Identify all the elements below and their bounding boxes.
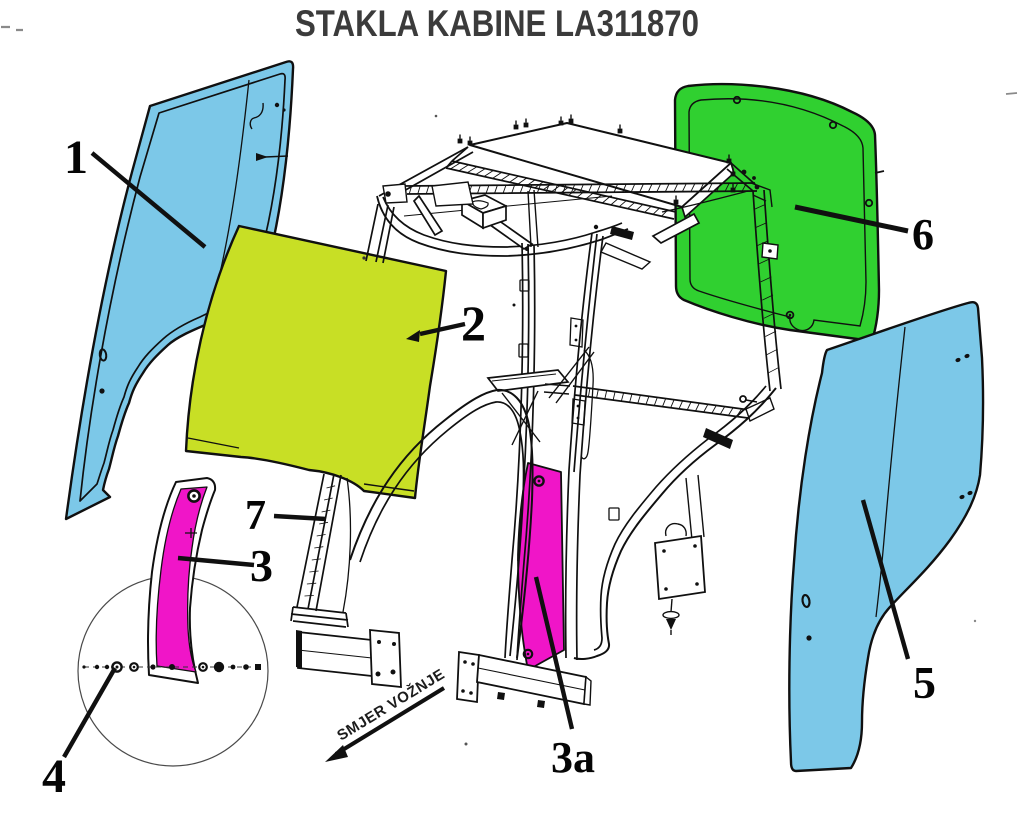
svg-text:3: 3 xyxy=(250,540,273,591)
svg-text:6: 6 xyxy=(912,210,934,259)
svg-text:STAKLA KABINE LA311870: STAKLA KABINE LA311870 xyxy=(295,3,699,44)
svg-text:2: 2 xyxy=(461,295,486,351)
svg-text:1: 1 xyxy=(64,131,88,184)
svg-text:5: 5 xyxy=(913,657,936,708)
svg-text:3a: 3a xyxy=(551,733,595,782)
svg-text:7: 7 xyxy=(245,493,266,539)
svg-text:4: 4 xyxy=(42,750,66,803)
